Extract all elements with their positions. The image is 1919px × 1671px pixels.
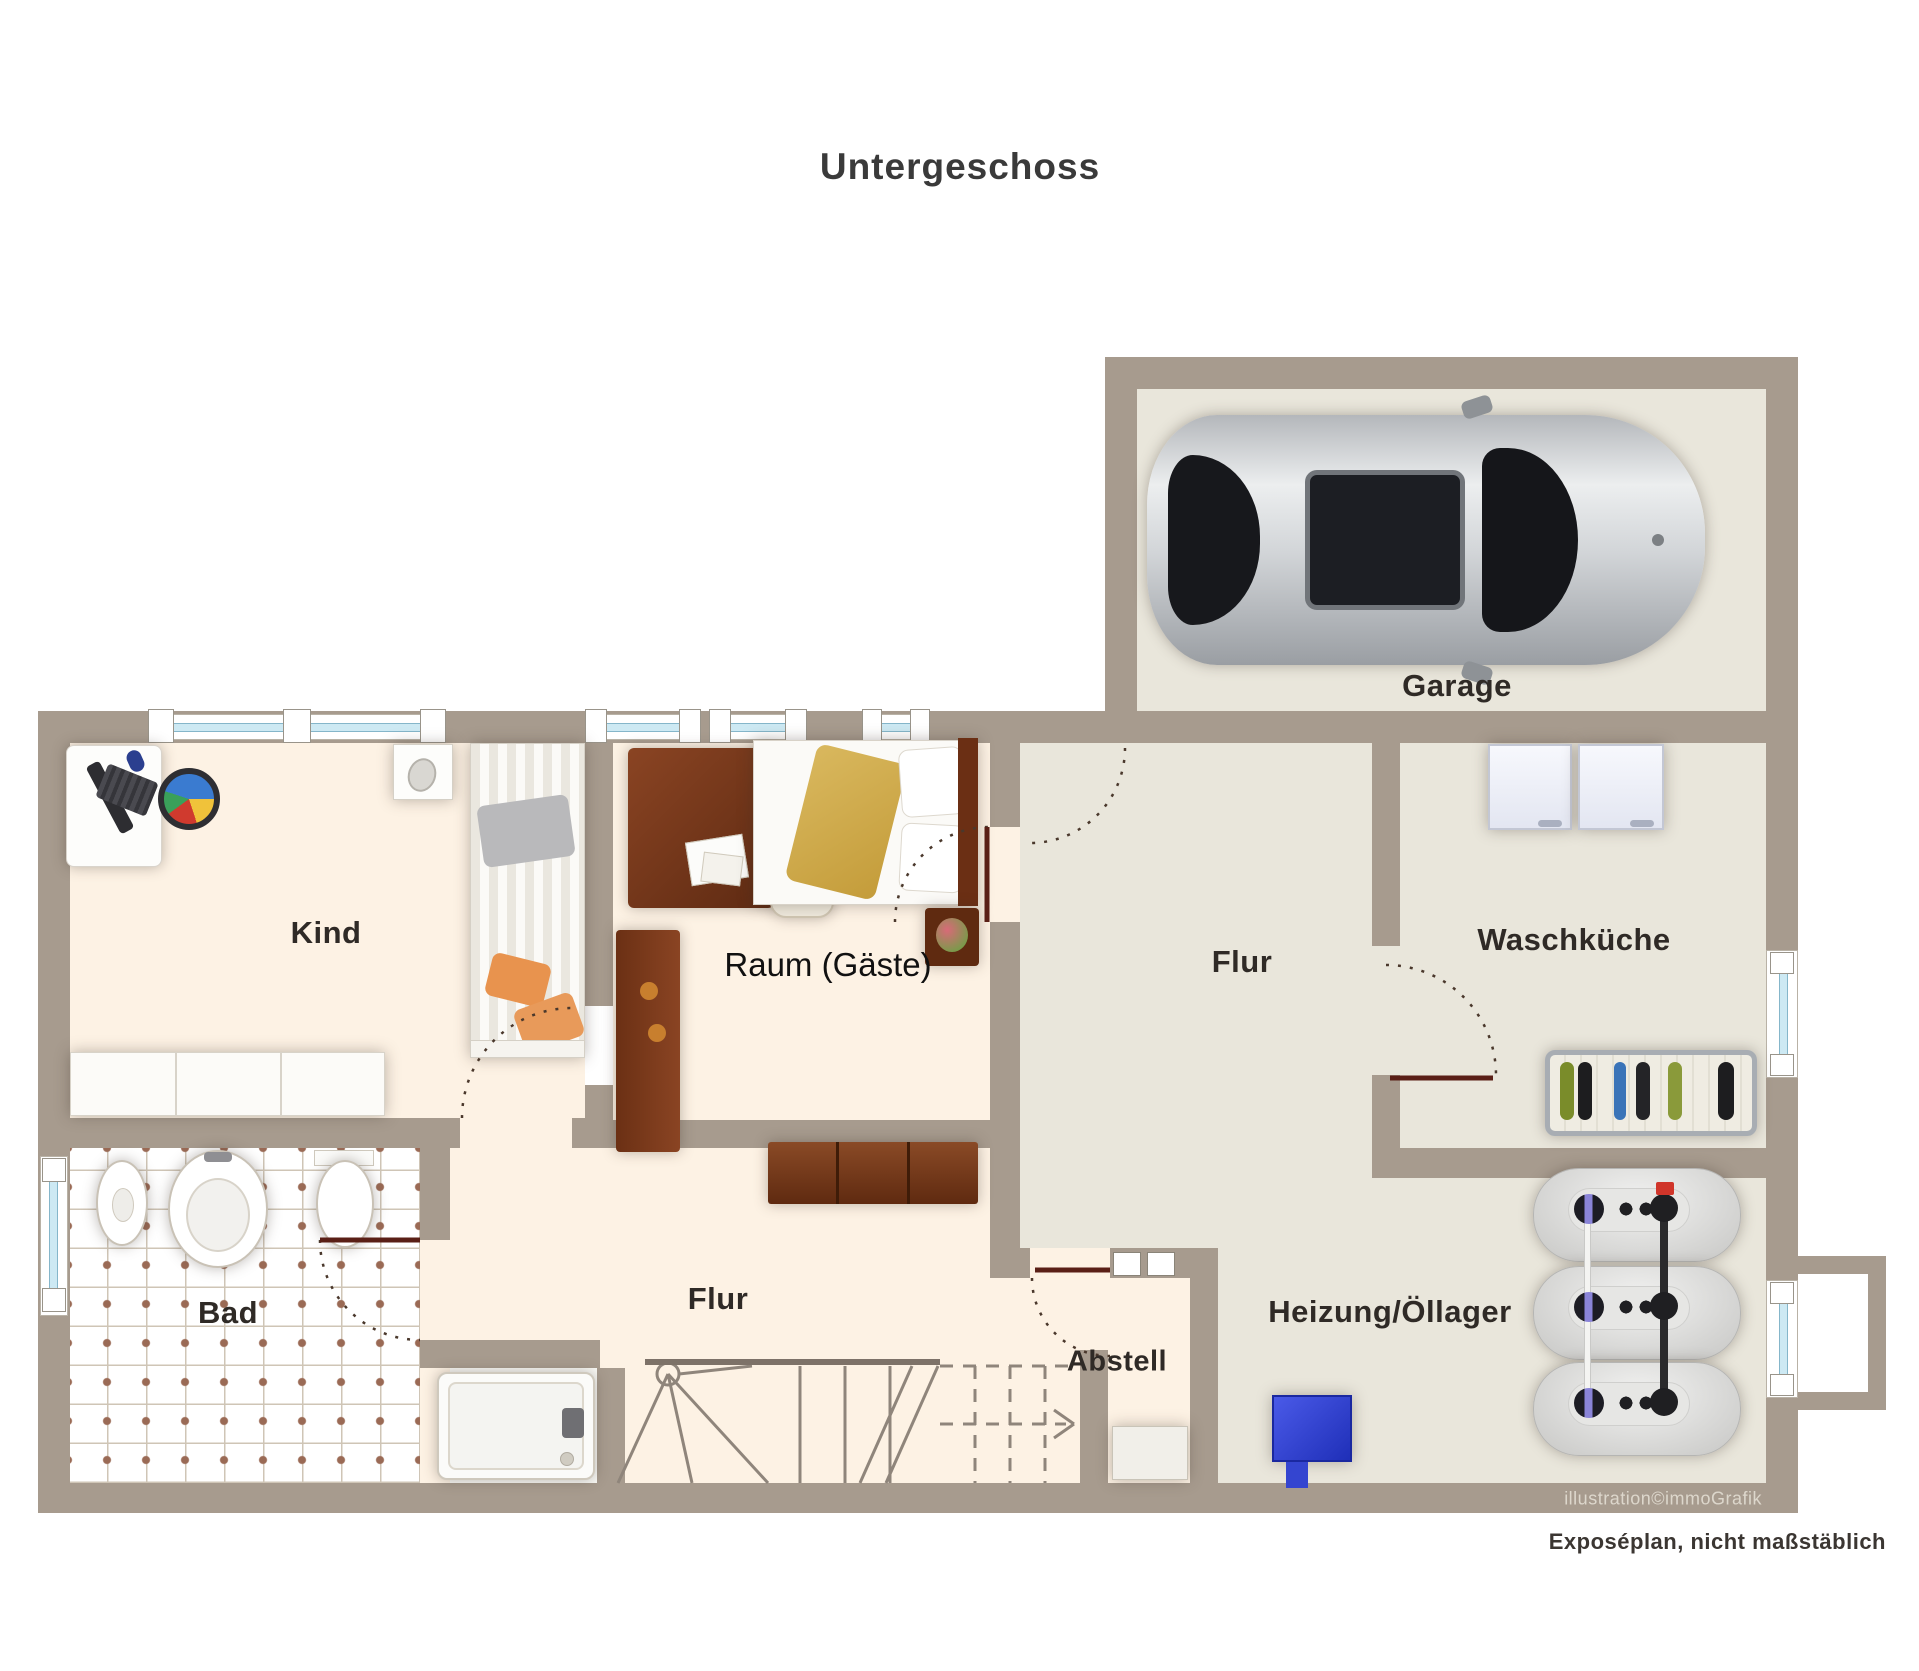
kind-bed-footboard: [470, 1040, 585, 1058]
window-kind-cap-left: [148, 709, 174, 743]
shoe-pair-green: [1560, 1062, 1574, 1120]
oil-tank-2-port-right: [1650, 1292, 1678, 1320]
floorplan-canvas: Untergeschoss Garage Kind Raum (Gäste) F…: [0, 0, 1919, 1671]
oil-tank-3-port-right: [1650, 1388, 1678, 1416]
wall-bottom: [38, 1483, 1798, 1513]
window-heizung-glass: [1779, 1302, 1788, 1377]
oil-tank-3-port-left: [1574, 1388, 1604, 1418]
window-raum1-cap-left: [585, 709, 607, 743]
room-label-kind: Kind: [291, 915, 362, 951]
wall-wasch-left-a: [1372, 743, 1400, 946]
abstell-hatch-2: [1147, 1252, 1175, 1276]
wall-abstell-top-a: [990, 1248, 1030, 1278]
wall-raum-right-b: [990, 922, 1020, 1248]
guest-nightstand-flowers: [936, 918, 968, 952]
kind-chair: [158, 768, 220, 830]
window-wasch-cap-top: [1770, 952, 1794, 974]
room-label-flur-upper: Flur: [1212, 944, 1273, 980]
shoe-pair-black-1: [1578, 1062, 1592, 1120]
sink-bowl: [186, 1178, 250, 1252]
room-label-heizung-oellager: Heizung/Öllager: [1268, 1294, 1511, 1330]
window-bad-cap-top: [42, 1158, 66, 1182]
kind-door-opening: [460, 1118, 572, 1148]
wall-tub-top: [420, 1340, 600, 1368]
window-kind-mullion: [283, 709, 311, 743]
wall-garage-top: [1105, 357, 1798, 389]
room-label-garage: Garage: [1402, 668, 1512, 704]
bidet-bowl: [112, 1188, 134, 1222]
credit-text: illustration©immoGrafik: [1564, 1489, 1762, 1510]
guest-bed-pillow-2: [898, 822, 965, 893]
oil-tank-1-port-right: [1650, 1194, 1678, 1222]
room-label-bad: Bad: [198, 1295, 258, 1331]
window-bed-cap-right: [910, 709, 930, 743]
oil-tank-2-port-left: [1574, 1292, 1604, 1322]
room-label-flur-lower: Flur: [688, 1281, 749, 1317]
wall-tub-right: [597, 1368, 625, 1483]
raum-shelf-knob-1: [640, 982, 658, 1000]
window-kind-cap-right: [420, 709, 446, 743]
wasch-door-opening: [1372, 946, 1400, 1075]
disclaimer-text: Exposéplan, nicht maßstäblich: [1549, 1529, 1886, 1555]
car-brand-emblem: [1652, 534, 1664, 546]
wall-kind-bottom-a: [38, 1118, 460, 1148]
shoe-pair-olive: [1668, 1062, 1682, 1120]
raum-shelf-knob-2: [648, 1024, 666, 1042]
window-bad-glass: [49, 1180, 58, 1292]
toilet: [316, 1160, 374, 1248]
wall-kind-raum: [585, 743, 613, 1006]
kind-sideboard: [70, 1052, 385, 1116]
sink-faucet: [204, 1152, 232, 1162]
abstell-hatch-1: [1113, 1252, 1141, 1276]
lightwell-wall-bottom: [1798, 1392, 1886, 1410]
oil-tank-red-cap: [1656, 1182, 1674, 1195]
abstell-door-opening: [1030, 1248, 1110, 1278]
window-wasch-glass: [1779, 972, 1788, 1057]
window-raum2-cap-right: [785, 709, 807, 743]
wall-bad-right-a: [420, 1148, 450, 1240]
window-raum1-cap-right: [679, 709, 701, 743]
room-label-abstell: Abstell: [1067, 1346, 1167, 1379]
wall-wasch-left-b: [1372, 1075, 1400, 1148]
window-heizung-cap-top: [1770, 1282, 1794, 1304]
window-wasch-cap-bottom: [1770, 1054, 1794, 1076]
raum-shelf: [616, 930, 680, 1152]
page-title: Untergeschoss: [820, 146, 1100, 188]
raum-door-opening: [990, 827, 1020, 922]
wall-kind-bottom-b: [572, 1118, 613, 1148]
shoe-pair-black-3: [1718, 1062, 1734, 1120]
car-sunroof: [1305, 470, 1465, 610]
window-raum2-cap-left: [709, 709, 731, 743]
heater-unit: [1272, 1395, 1352, 1462]
room-label-waschkueche: Waschküche: [1477, 922, 1670, 958]
washing-machine-2: [1578, 744, 1664, 830]
window-heizung-cap-bottom: [1770, 1374, 1794, 1396]
washing-machine-1-controls: [1538, 820, 1562, 827]
oil-tank-1-port-left: [1574, 1194, 1604, 1224]
washing-machine-2-controls: [1630, 820, 1654, 827]
flur-sideboard: [768, 1142, 978, 1204]
shoe-pair-blue: [1614, 1062, 1626, 1120]
wall-garage-left: [1105, 357, 1137, 743]
window-bad-cap-bottom: [42, 1288, 66, 1312]
guest-bed-headboard: [958, 738, 978, 906]
bathtub-faucet: [562, 1408, 584, 1438]
washing-machine-1: [1488, 744, 1572, 830]
wall-abstell-right: [1190, 1248, 1218, 1483]
heater-leg: [1286, 1462, 1308, 1488]
shoe-pair-black-2: [1636, 1062, 1650, 1120]
lightwell-interior: [1798, 1274, 1868, 1392]
abstell-cabinet: [1112, 1426, 1188, 1480]
room-label-raum-gaeste: Raum (Gäste): [724, 946, 931, 984]
wall-raum-right-a: [990, 743, 1020, 827]
raum-desk-papers-2: [700, 852, 743, 887]
lightwell-wall-right: [1868, 1256, 1886, 1410]
window-bed-cap-left: [862, 709, 882, 743]
kind-bed-pillow: [476, 794, 576, 868]
guest-bed-pillow-1: [898, 746, 967, 818]
bathtub-drain: [560, 1452, 574, 1466]
